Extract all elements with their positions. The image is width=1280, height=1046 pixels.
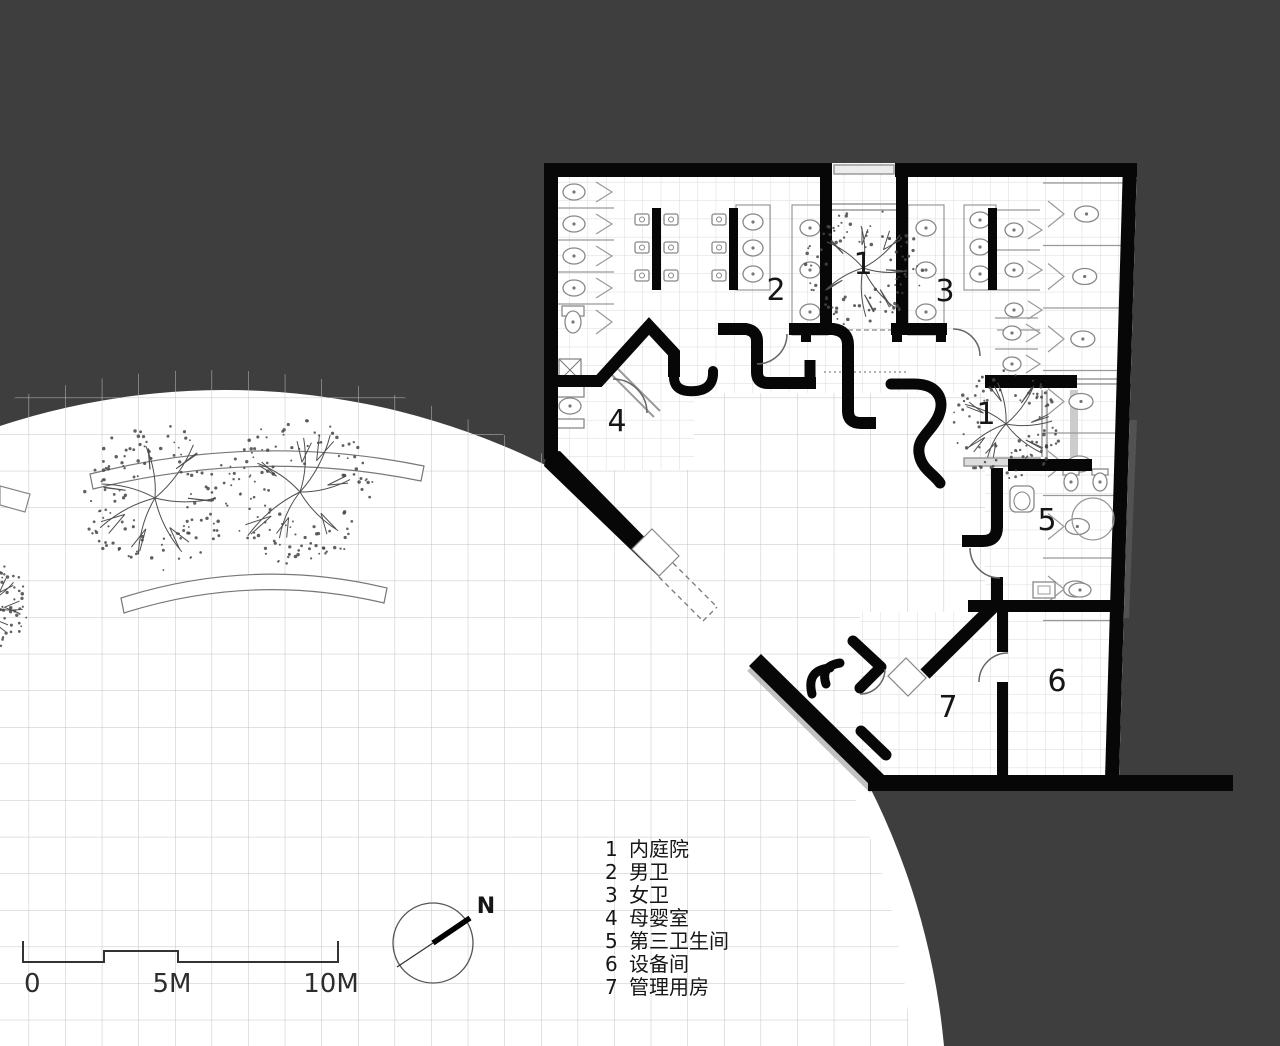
- floor-plan-sheet: 1 2 3 1 4 5 6 7 0 5M 10M N 1内庭院 2男卫 3女卫 …: [0, 0, 1280, 1046]
- room-label-courtyard-1: 1: [853, 247, 872, 282]
- room-label-equipment: 6: [1047, 664, 1066, 699]
- bottom-wall-bar: [868, 775, 1233, 791]
- room-label-accessible-wc: 5: [1037, 503, 1056, 538]
- drawing-canvas: 1 2 3 1 4 5 6 7 0 5M 10M N 1内庭院 2男卫 3女卫 …: [0, 0, 1280, 1046]
- room-label-courtyard-2: 1: [976, 397, 995, 432]
- legend-item: 3女卫: [605, 883, 669, 907]
- room-label-nursing: 4: [607, 404, 626, 439]
- legend-item: 2男卫: [605, 860, 669, 884]
- scale-label-0: 0: [24, 969, 41, 999]
- room-label-mens: 2: [766, 273, 785, 308]
- legend-item: 4母婴室: [605, 906, 689, 930]
- north-label: N: [477, 894, 495, 919]
- scale-label-5m: 5M: [153, 969, 192, 999]
- room-label-office: 7: [938, 690, 957, 725]
- legend-item: 6设备间: [605, 952, 689, 976]
- room-label-womens: 3: [935, 274, 954, 309]
- legend-item: 1内庭院: [605, 837, 689, 861]
- scale-label-10m: 10M: [303, 969, 359, 999]
